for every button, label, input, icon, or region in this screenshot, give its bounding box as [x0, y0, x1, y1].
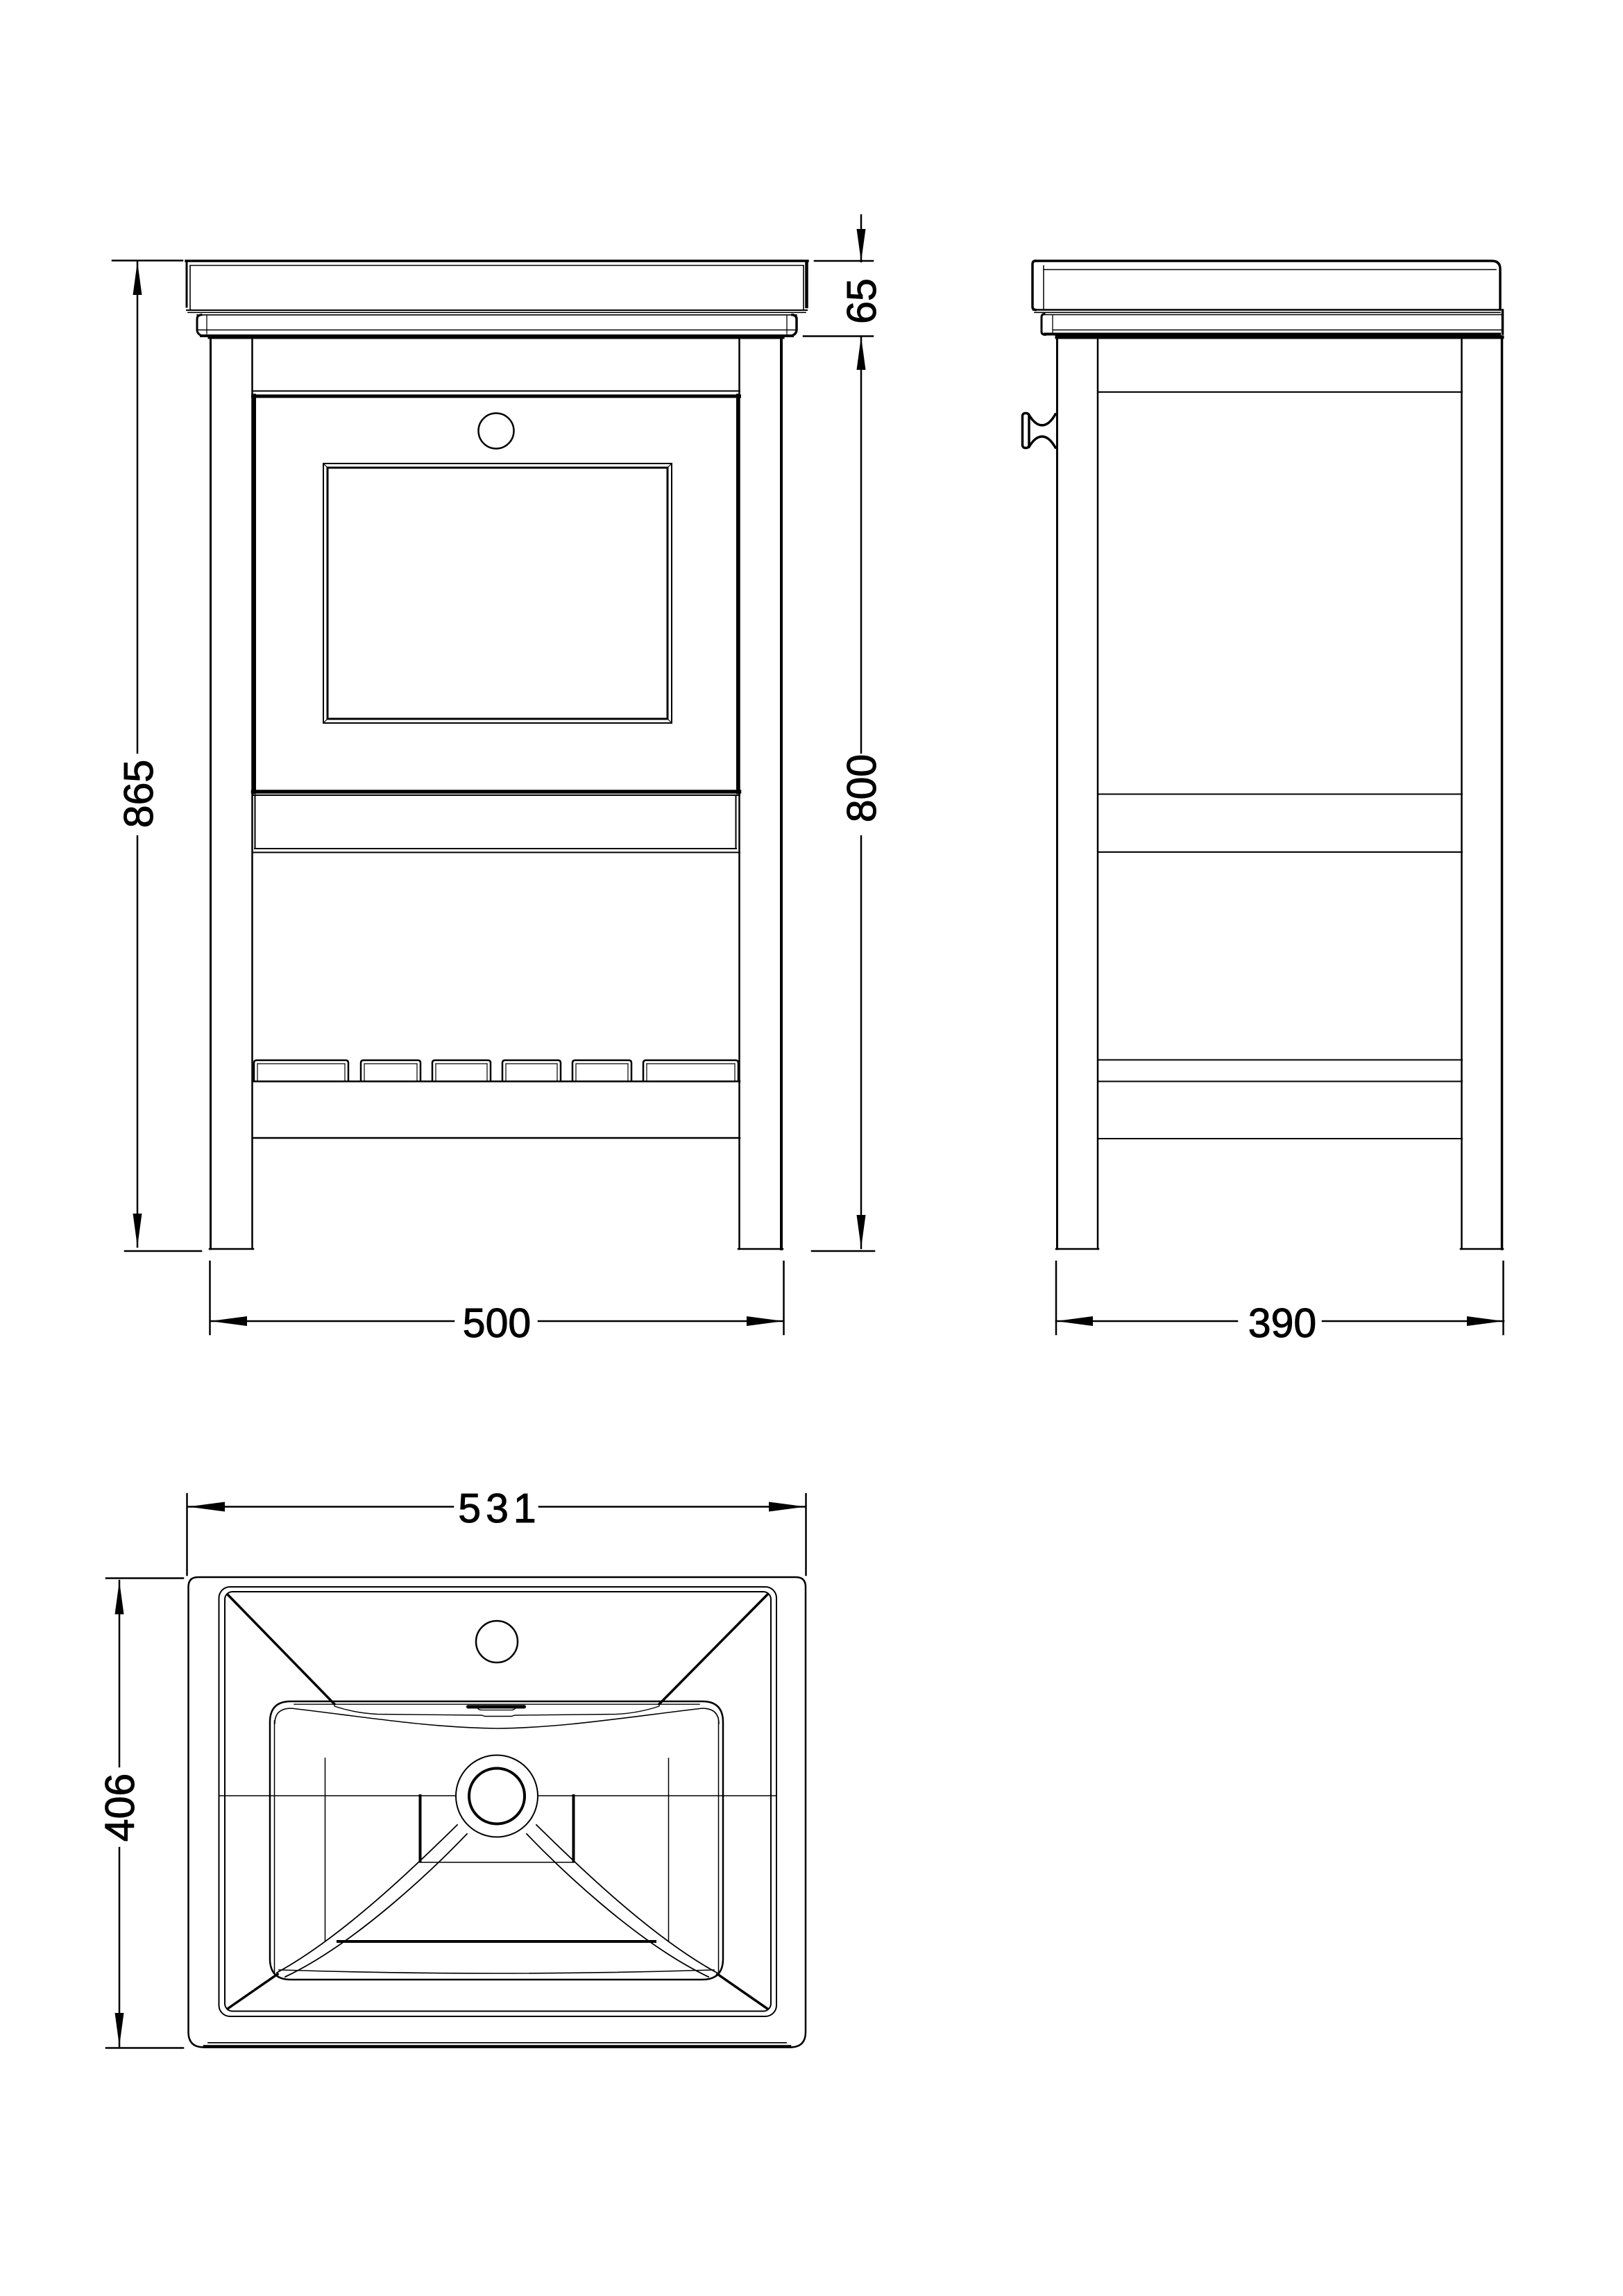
- svg-text:406: 406: [97, 1774, 143, 1842]
- svg-text:800: 800: [839, 754, 885, 822]
- svg-text:500: 500: [463, 1300, 531, 1346]
- svg-text:531: 531: [458, 1486, 541, 1531]
- svg-text:390: 390: [1248, 1300, 1316, 1346]
- svg-text:65: 65: [839, 278, 885, 324]
- svg-text:865: 865: [116, 760, 162, 828]
